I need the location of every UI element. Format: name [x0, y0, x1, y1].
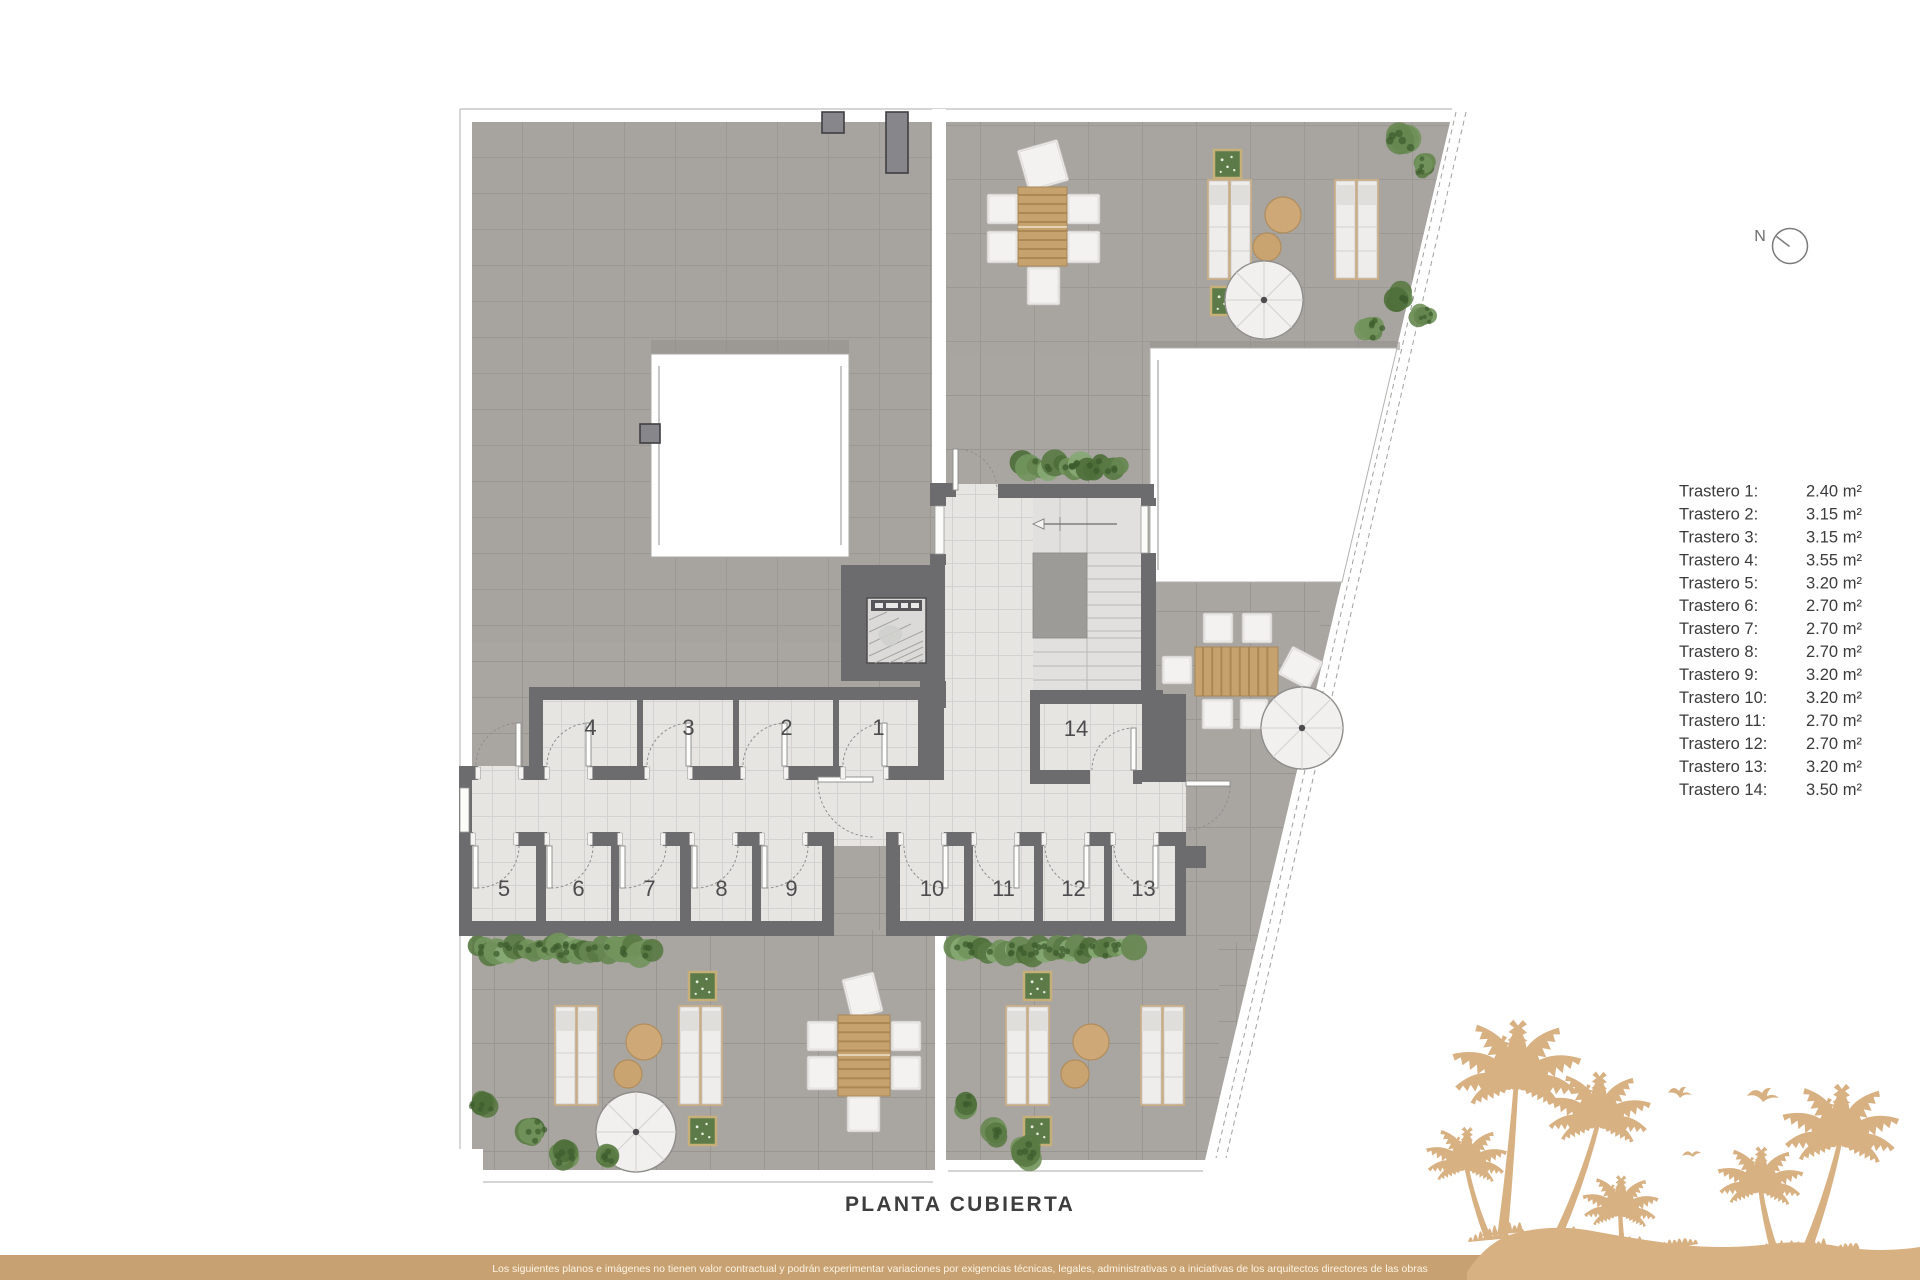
- svg-text:N: N: [1754, 228, 1766, 245]
- svg-text:11: 11: [992, 876, 1015, 901]
- svg-text:2.70 m²: 2.70 m²: [1806, 735, 1862, 753]
- svg-text:3.20 m²: 3.20 m²: [1806, 666, 1862, 684]
- svg-text:13: 13: [1131, 876, 1155, 901]
- svg-text:Trastero 9:: Trastero 9:: [1679, 666, 1758, 684]
- svg-text:3: 3: [682, 715, 694, 740]
- svg-text:10: 10: [920, 876, 944, 901]
- svg-text:Trastero 7:: Trastero 7:: [1679, 620, 1758, 638]
- svg-text:Trastero 2:: Trastero 2:: [1679, 506, 1758, 524]
- svg-text:2.70 m²: 2.70 m²: [1806, 620, 1862, 638]
- svg-text:14: 14: [1064, 716, 1088, 741]
- svg-text:2.70 m²: 2.70 m²: [1806, 643, 1862, 661]
- svg-text:3.15 m²: 3.15 m²: [1806, 528, 1862, 546]
- svg-text:3.50 m²: 3.50 m²: [1806, 781, 1862, 799]
- svg-text:2: 2: [780, 715, 792, 740]
- svg-text:3.20 m²: 3.20 m²: [1806, 574, 1862, 592]
- svg-text:1: 1: [872, 715, 884, 740]
- svg-text:Trastero 4:: Trastero 4:: [1679, 551, 1758, 569]
- svg-text:2.70 m²: 2.70 m²: [1806, 712, 1862, 730]
- svg-text:8: 8: [715, 876, 727, 901]
- svg-text:9: 9: [785, 876, 797, 901]
- svg-text:7: 7: [643, 876, 655, 901]
- svg-text:Trastero 12:: Trastero 12:: [1679, 735, 1767, 753]
- svg-text:4: 4: [584, 715, 596, 740]
- svg-text:2.70 m²: 2.70 m²: [1806, 597, 1862, 615]
- svg-text:Trastero 3:: Trastero 3:: [1679, 528, 1758, 546]
- svg-text:Trastero 1:: Trastero 1:: [1679, 483, 1758, 501]
- svg-text:Trastero 5:: Trastero 5:: [1679, 574, 1758, 592]
- svg-text:3.55 m²: 3.55 m²: [1806, 551, 1862, 569]
- svg-text:12: 12: [1061, 876, 1085, 901]
- svg-text:Trastero 8:: Trastero 8:: [1679, 643, 1758, 661]
- svg-text:3.20 m²: 3.20 m²: [1806, 758, 1862, 776]
- svg-text:Los siguientes planos e imágen: Los siguientes planos e imágenes no tien…: [492, 1263, 1428, 1275]
- svg-text:PLANTA CUBIERTA: PLANTA CUBIERTA: [845, 1193, 1075, 1216]
- svg-text:3.15 m²: 3.15 m²: [1806, 506, 1862, 524]
- svg-text:Trastero 11:: Trastero 11:: [1679, 712, 1766, 730]
- svg-text:Trastero 13:: Trastero 13:: [1679, 758, 1767, 776]
- svg-text:Trastero 6:: Trastero 6:: [1679, 597, 1758, 615]
- svg-text:Trastero 14:: Trastero 14:: [1679, 781, 1767, 799]
- svg-text:Trastero 10:: Trastero 10:: [1679, 689, 1767, 707]
- svg-text:5: 5: [498, 876, 510, 901]
- svg-text:6: 6: [572, 876, 584, 901]
- svg-text:3.20 m²: 3.20 m²: [1806, 689, 1862, 707]
- svg-text:2.40 m²: 2.40 m²: [1806, 483, 1862, 501]
